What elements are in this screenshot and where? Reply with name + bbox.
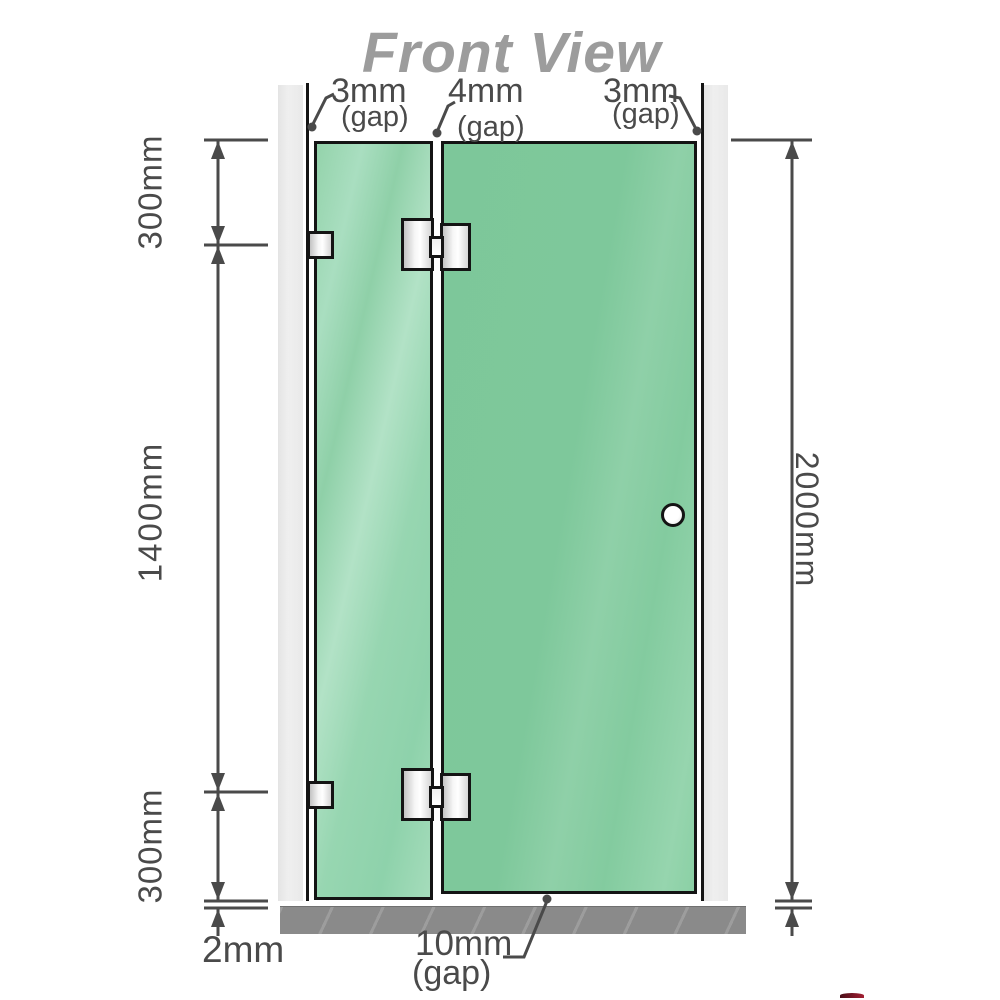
dimension-label-left-bottom: 300mm [134,788,167,903]
wall-bracket-top-icon [307,231,334,259]
dimension-label-left-middle: 1400mm [134,442,167,582]
left-wall-edge-line [306,83,309,901]
dimension-label-right-total: 2000mm [791,452,823,589]
gap-label-top-right-note: (gap) [612,100,680,129]
front-view-diagram: Front View [0,0,1000,1000]
gap-label-top-middle-note: (gap) [457,113,525,142]
bottom-hinge-door-plate-icon [440,773,471,821]
gap-label-bottom-note: (gap) [412,956,491,990]
watermark-fragment [840,993,864,998]
bottom-hinge-knuckle-icon [429,786,444,808]
top-hinge-knuckle-icon [429,236,444,258]
dimension-label-bottom-left: 2mm [202,931,284,968]
gap-label-top-middle-value: 4mm [448,74,524,108]
top-hinge-door-plate-icon [440,223,471,271]
left-wall-channel [278,85,303,901]
right-wall-channel [704,85,728,901]
wall-bracket-bottom-icon [307,781,334,809]
door-glass-panel [441,141,697,894]
gap-label-top-left-note: (gap) [341,103,409,132]
dimension-label-left-top: 300mm [134,134,167,249]
door-knob-icon [661,503,685,527]
floor-base [280,906,746,934]
